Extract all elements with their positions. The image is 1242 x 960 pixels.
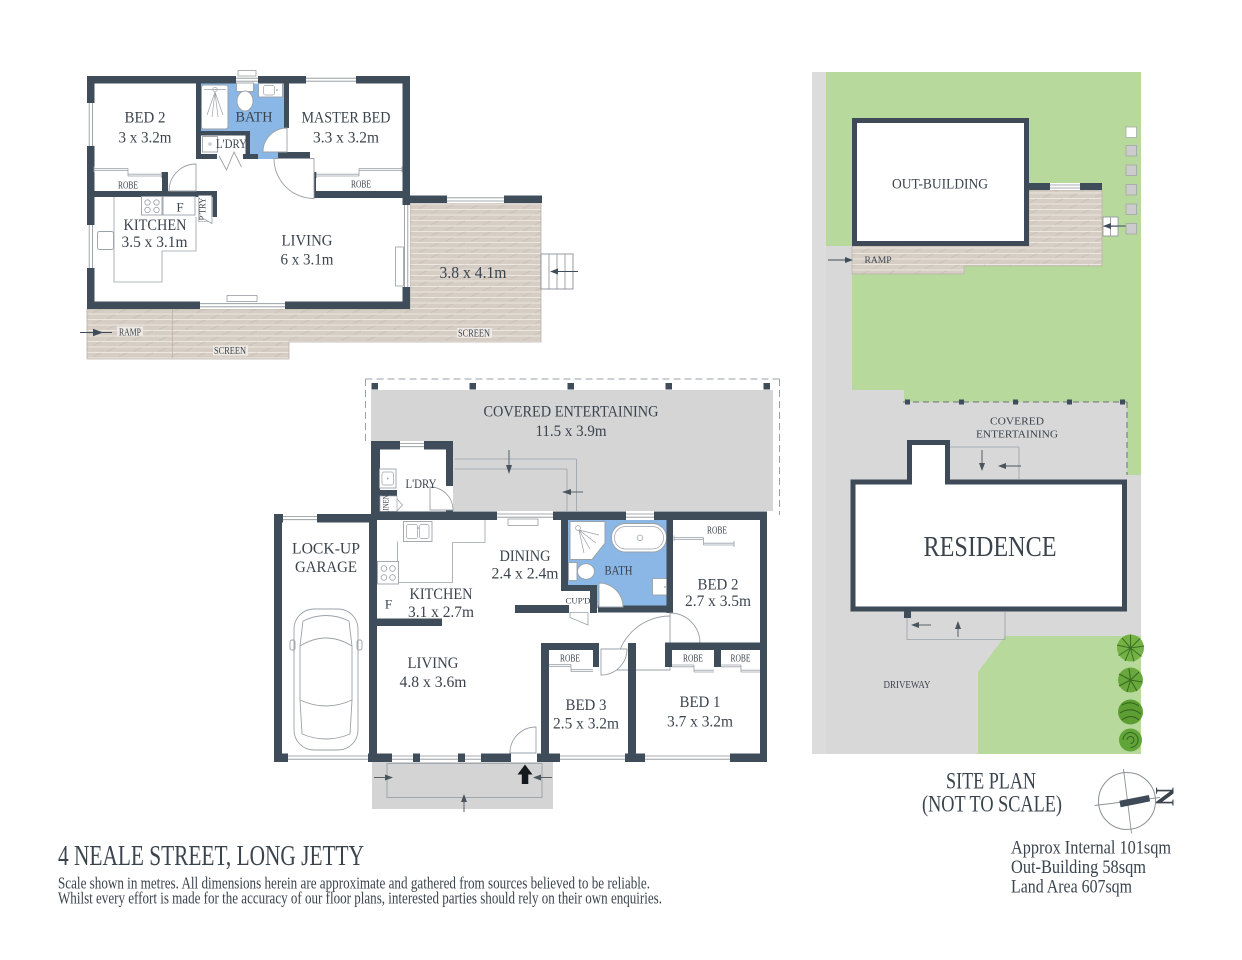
svg-text:DRIVEWAY: DRIVEWAY: [884, 680, 931, 691]
svg-text:11.5 x 3.9m: 11.5 x 3.9m: [536, 423, 608, 440]
svg-text:2.7 x 3.5m: 2.7 x 3.5m: [685, 593, 752, 610]
svg-text:ROBE: ROBE: [683, 654, 703, 665]
svg-text:3 x 3.2m: 3 x 3.2m: [119, 130, 173, 147]
svg-text:KITCHEN: KITCHEN: [410, 586, 473, 603]
svg-text:DINING: DINING: [500, 548, 551, 565]
svg-text:COVERED: COVERED: [990, 416, 1044, 428]
svg-text:BED 1: BED 1: [680, 694, 721, 711]
svg-text:3.3 x 3.2m: 3.3 x 3.2m: [313, 130, 380, 147]
svg-text:SCREEN: SCREEN: [214, 346, 246, 357]
svg-text:ROBE: ROBE: [118, 181, 138, 192]
svg-text:RAMP: RAMP: [119, 328, 141, 339]
svg-text:L'DRY: L'DRY: [216, 136, 248, 151]
svg-text:CUP'D: CUP'D: [566, 596, 591, 606]
svg-text:3.1 x 2.7m: 3.1 x 2.7m: [408, 604, 475, 621]
svg-text:Whilst every effort is made fo: Whilst every effort is made for the accu…: [58, 889, 662, 908]
svg-text:L'DRY: L'DRY: [406, 476, 438, 491]
svg-text:MASTER BED: MASTER BED: [302, 110, 391, 127]
svg-text:F: F: [176, 200, 183, 215]
svg-text:F: F: [385, 597, 392, 612]
svg-text:Out-Building 58sqm: Out-Building 58sqm: [1011, 857, 1146, 878]
svg-text:N: N: [1150, 787, 1179, 806]
svg-text:3.8 x 4.1m: 3.8 x 4.1m: [440, 263, 507, 282]
svg-text:ROBE: ROBE: [731, 654, 751, 665]
svg-text:P'TRY: P'TRY: [198, 197, 208, 220]
svg-text:6 x 3.1m: 6 x 3.1m: [281, 252, 335, 269]
svg-text:Approx Internal 101sqm: Approx Internal 101sqm: [1011, 838, 1171, 859]
svg-text:BED 3: BED 3: [566, 697, 607, 714]
svg-text:RAMP: RAMP: [865, 256, 892, 266]
svg-text:4 NEALE STREET, LONG JETTY: 4 NEALE STREET, LONG JETTY: [58, 840, 364, 872]
svg-text:BATH: BATH: [605, 564, 633, 578]
svg-text:ENTERTAINING: ENTERTAINING: [976, 429, 1058, 441]
svg-text:ROBE: ROBE: [707, 526, 727, 537]
svg-text:2.4 x 2.4m: 2.4 x 2.4m: [492, 566, 560, 583]
svg-text:ROBE: ROBE: [560, 654, 580, 665]
svg-text:COVERED ENTERTAINING: COVERED ENTERTAINING: [484, 404, 659, 421]
svg-text:RESIDENCE: RESIDENCE: [924, 531, 1057, 563]
svg-text:3.5 x 3.1m: 3.5 x 3.1m: [122, 234, 189, 251]
svg-text:Land Area 607sqm: Land Area 607sqm: [1011, 877, 1132, 898]
svg-text:BED 2: BED 2: [125, 110, 166, 127]
svg-text:GARAGE: GARAGE: [295, 559, 357, 576]
svg-text:OUT-BUILDING: OUT-BUILDING: [892, 177, 988, 193]
svg-text:LINEN: LINEN: [382, 494, 391, 514]
svg-text:KITCHEN: KITCHEN: [124, 217, 187, 234]
svg-text:(NOT TO SCALE): (NOT TO SCALE): [922, 792, 1062, 818]
svg-text:LIVING: LIVING: [408, 655, 459, 672]
svg-text:BED 2: BED 2: [698, 577, 739, 594]
svg-text:2.5 x 3.2m: 2.5 x 3.2m: [553, 716, 620, 733]
svg-text:ROBE: ROBE: [351, 180, 371, 191]
svg-text:3.7 x 3.2m: 3.7 x 3.2m: [667, 714, 734, 731]
svg-text:BATH: BATH: [236, 110, 273, 126]
svg-text:SCREEN: SCREEN: [458, 329, 490, 340]
svg-text:LIVING: LIVING: [282, 233, 333, 250]
svg-text:4.8 x 3.6m: 4.8 x 3.6m: [400, 674, 468, 691]
svg-text:LOCK-UP: LOCK-UP: [292, 541, 360, 558]
